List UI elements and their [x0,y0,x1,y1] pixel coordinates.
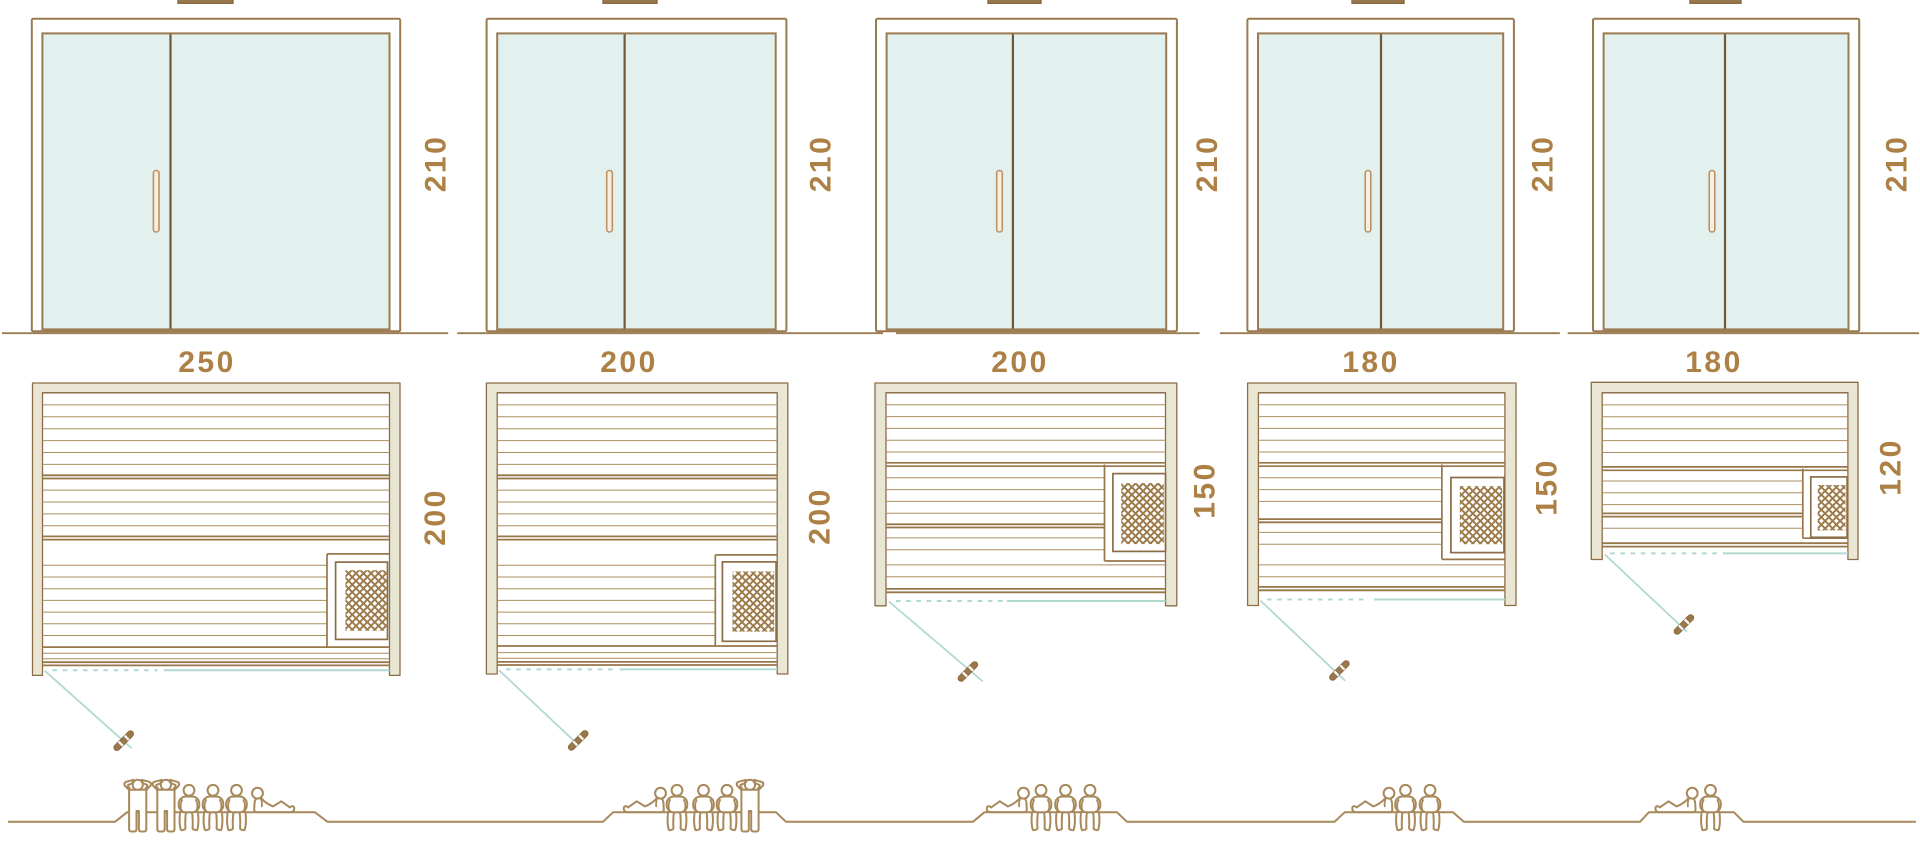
svg-text:210: 210 [420,135,453,193]
svg-text:120: 120 [1875,438,1908,496]
svg-text:250: 250 [178,346,236,379]
svg-text:150: 150 [1531,458,1564,516]
svg-text:210: 210 [1881,135,1914,193]
svg-text:200: 200 [419,488,452,546]
svg-text:200: 200 [991,346,1049,379]
svg-text:210: 210 [805,135,838,193]
svg-text:210: 210 [1527,135,1560,193]
svg-text:180: 180 [1685,346,1743,379]
svg-text:150: 150 [1189,461,1222,519]
svg-text:180: 180 [1342,346,1400,379]
svg-text:200: 200 [804,487,837,545]
svg-text:200: 200 [600,346,658,379]
svg-text:210: 210 [1191,135,1224,193]
